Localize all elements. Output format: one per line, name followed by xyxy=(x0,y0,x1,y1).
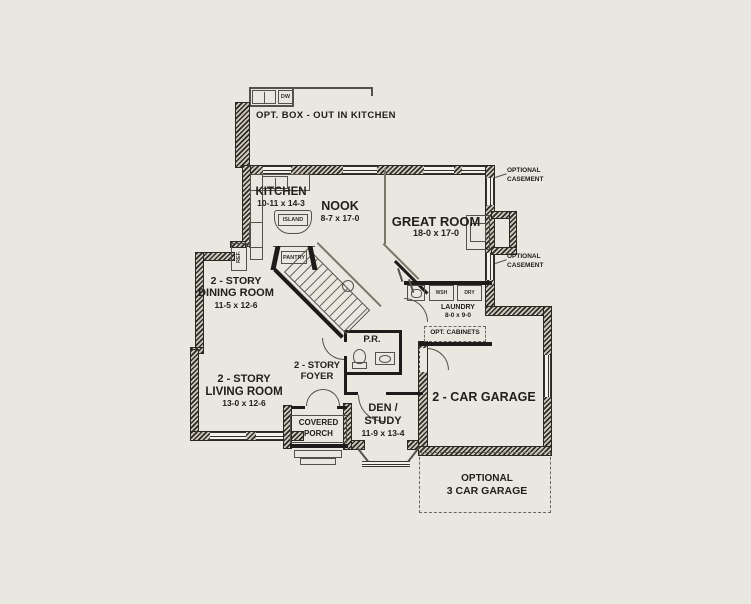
dishwasher-label: DW xyxy=(281,94,290,100)
optional-garage-l1: OPTIONAL xyxy=(447,474,527,485)
pr-door-arc xyxy=(322,338,344,360)
laundry-wall-bottom xyxy=(419,342,492,346)
optbox-extension-tick xyxy=(371,87,373,96)
nook-dims: 8-7 x 17-0 xyxy=(312,214,368,223)
garage-door-arc xyxy=(427,348,449,370)
washer-label: WSH xyxy=(436,290,448,296)
pantry-label-box: PANTRY xyxy=(281,251,307,264)
garage-name: 2 - CAR GARAGE xyxy=(408,391,560,404)
living-l1: 2 - STORY xyxy=(200,374,288,386)
pr-name: P.R. xyxy=(358,335,386,345)
window-top-1 xyxy=(263,166,291,174)
refrigerator-box: REF. xyxy=(231,243,247,271)
den-l2: STUDY xyxy=(349,416,417,428)
porch-step-1 xyxy=(294,450,342,458)
greatroom-dims: 18-0 x 17-0 xyxy=(390,229,482,238)
casement-window-lower xyxy=(486,253,494,280)
living-dims: 13-0 x 12-6 xyxy=(204,399,284,408)
casement-lower-l1: OPTIONAL xyxy=(507,254,541,261)
casement-upper-l2: CASEMENT xyxy=(507,177,543,184)
optbox-wall-top xyxy=(249,87,294,89)
nook-greatroom-line xyxy=(384,168,386,244)
wall-garage-top xyxy=(486,307,551,315)
optbox-counter-line xyxy=(249,105,294,107)
pr-wall-right xyxy=(399,330,402,375)
optbox-annotation: OPT. BOX - OUT IN KITCHEN xyxy=(256,111,396,121)
den-bay-window xyxy=(362,461,410,467)
garage-door-opening xyxy=(420,348,427,372)
laundry-name: LAUNDRY xyxy=(430,304,486,311)
kitchen-dims: 10-11 x 14-3 xyxy=(247,199,315,208)
front-door-arc-right xyxy=(323,389,340,406)
utility-sink xyxy=(407,285,425,301)
casement-leader-upper xyxy=(495,173,507,178)
island-label: ISLAND xyxy=(283,217,303,223)
window-top-2 xyxy=(343,166,377,174)
foyer-l2: FOYER xyxy=(294,372,340,382)
stair-newel-curve xyxy=(342,280,354,292)
foyer-l1: 2 - STORY xyxy=(288,361,346,371)
foyer-porch-wall-b xyxy=(337,406,347,409)
casement-window-upper xyxy=(486,178,494,205)
dryer-box: DRY xyxy=(457,285,482,301)
kitchen-name: KITCHEN xyxy=(249,186,313,198)
optional-garage-l2: 3 CAR GARAGE xyxy=(437,486,537,497)
window-top-3 xyxy=(424,166,454,174)
optbox-wall-left xyxy=(249,87,251,107)
toilet-tank xyxy=(352,362,367,369)
front-door-arc-left xyxy=(306,389,323,406)
window-living-2 xyxy=(256,432,286,440)
washer-box: WSH xyxy=(429,285,454,301)
refrigerator-label: REF. xyxy=(236,251,242,263)
opt-cabinets-label: OPT. CABINETS xyxy=(427,330,483,337)
pr-wall-bottom xyxy=(344,372,402,375)
greatroom-name: GREAT ROOM xyxy=(380,215,492,229)
pantry-side-left xyxy=(270,246,280,270)
window-top-4 xyxy=(462,166,486,174)
floor-plan: DW OPT. BOX - OUT IN KITCHEN xyxy=(0,0,751,604)
casement-upper-l1: OPTIONAL xyxy=(507,168,541,175)
dishwasher-box: DW xyxy=(278,90,293,104)
dining-dims: 11-5 x 12-6 xyxy=(200,301,272,310)
den-wall-left xyxy=(344,375,347,395)
nook-name: NOOK xyxy=(310,200,370,213)
den-l1: DEN / xyxy=(352,403,414,415)
pr-wall-top xyxy=(344,330,402,333)
cooktop xyxy=(249,222,263,248)
window-living-1 xyxy=(210,432,246,440)
porch-l2: PORCH xyxy=(292,430,345,438)
wall-column-left xyxy=(236,103,249,167)
dining-l2: DINING ROOM xyxy=(190,288,282,300)
dining-l1: 2 - STORY xyxy=(196,276,276,287)
porch-step-2 xyxy=(300,458,336,465)
dryer-label: DRY xyxy=(464,290,474,296)
casement-leader-lower xyxy=(495,259,507,264)
porch-l1: COVERED xyxy=(292,419,345,427)
casement-lower-l2: CASEMENT xyxy=(507,263,543,270)
laundry-door-arc xyxy=(404,298,428,322)
optbox-sink xyxy=(252,90,276,104)
optbox-extension-line xyxy=(294,87,372,89)
den-dims: 11-9 x 13-4 xyxy=(348,429,418,438)
island-label-box: ISLAND xyxy=(278,214,308,226)
pantry-label: PANTRY xyxy=(283,255,305,261)
living-l2: LIVING ROOM xyxy=(196,386,292,398)
pr-sink xyxy=(379,355,391,363)
laundry-dims: 8-0 x 9-0 xyxy=(432,313,484,320)
porch-edge xyxy=(290,444,348,448)
foyer-porch-wall-a xyxy=(291,406,305,409)
